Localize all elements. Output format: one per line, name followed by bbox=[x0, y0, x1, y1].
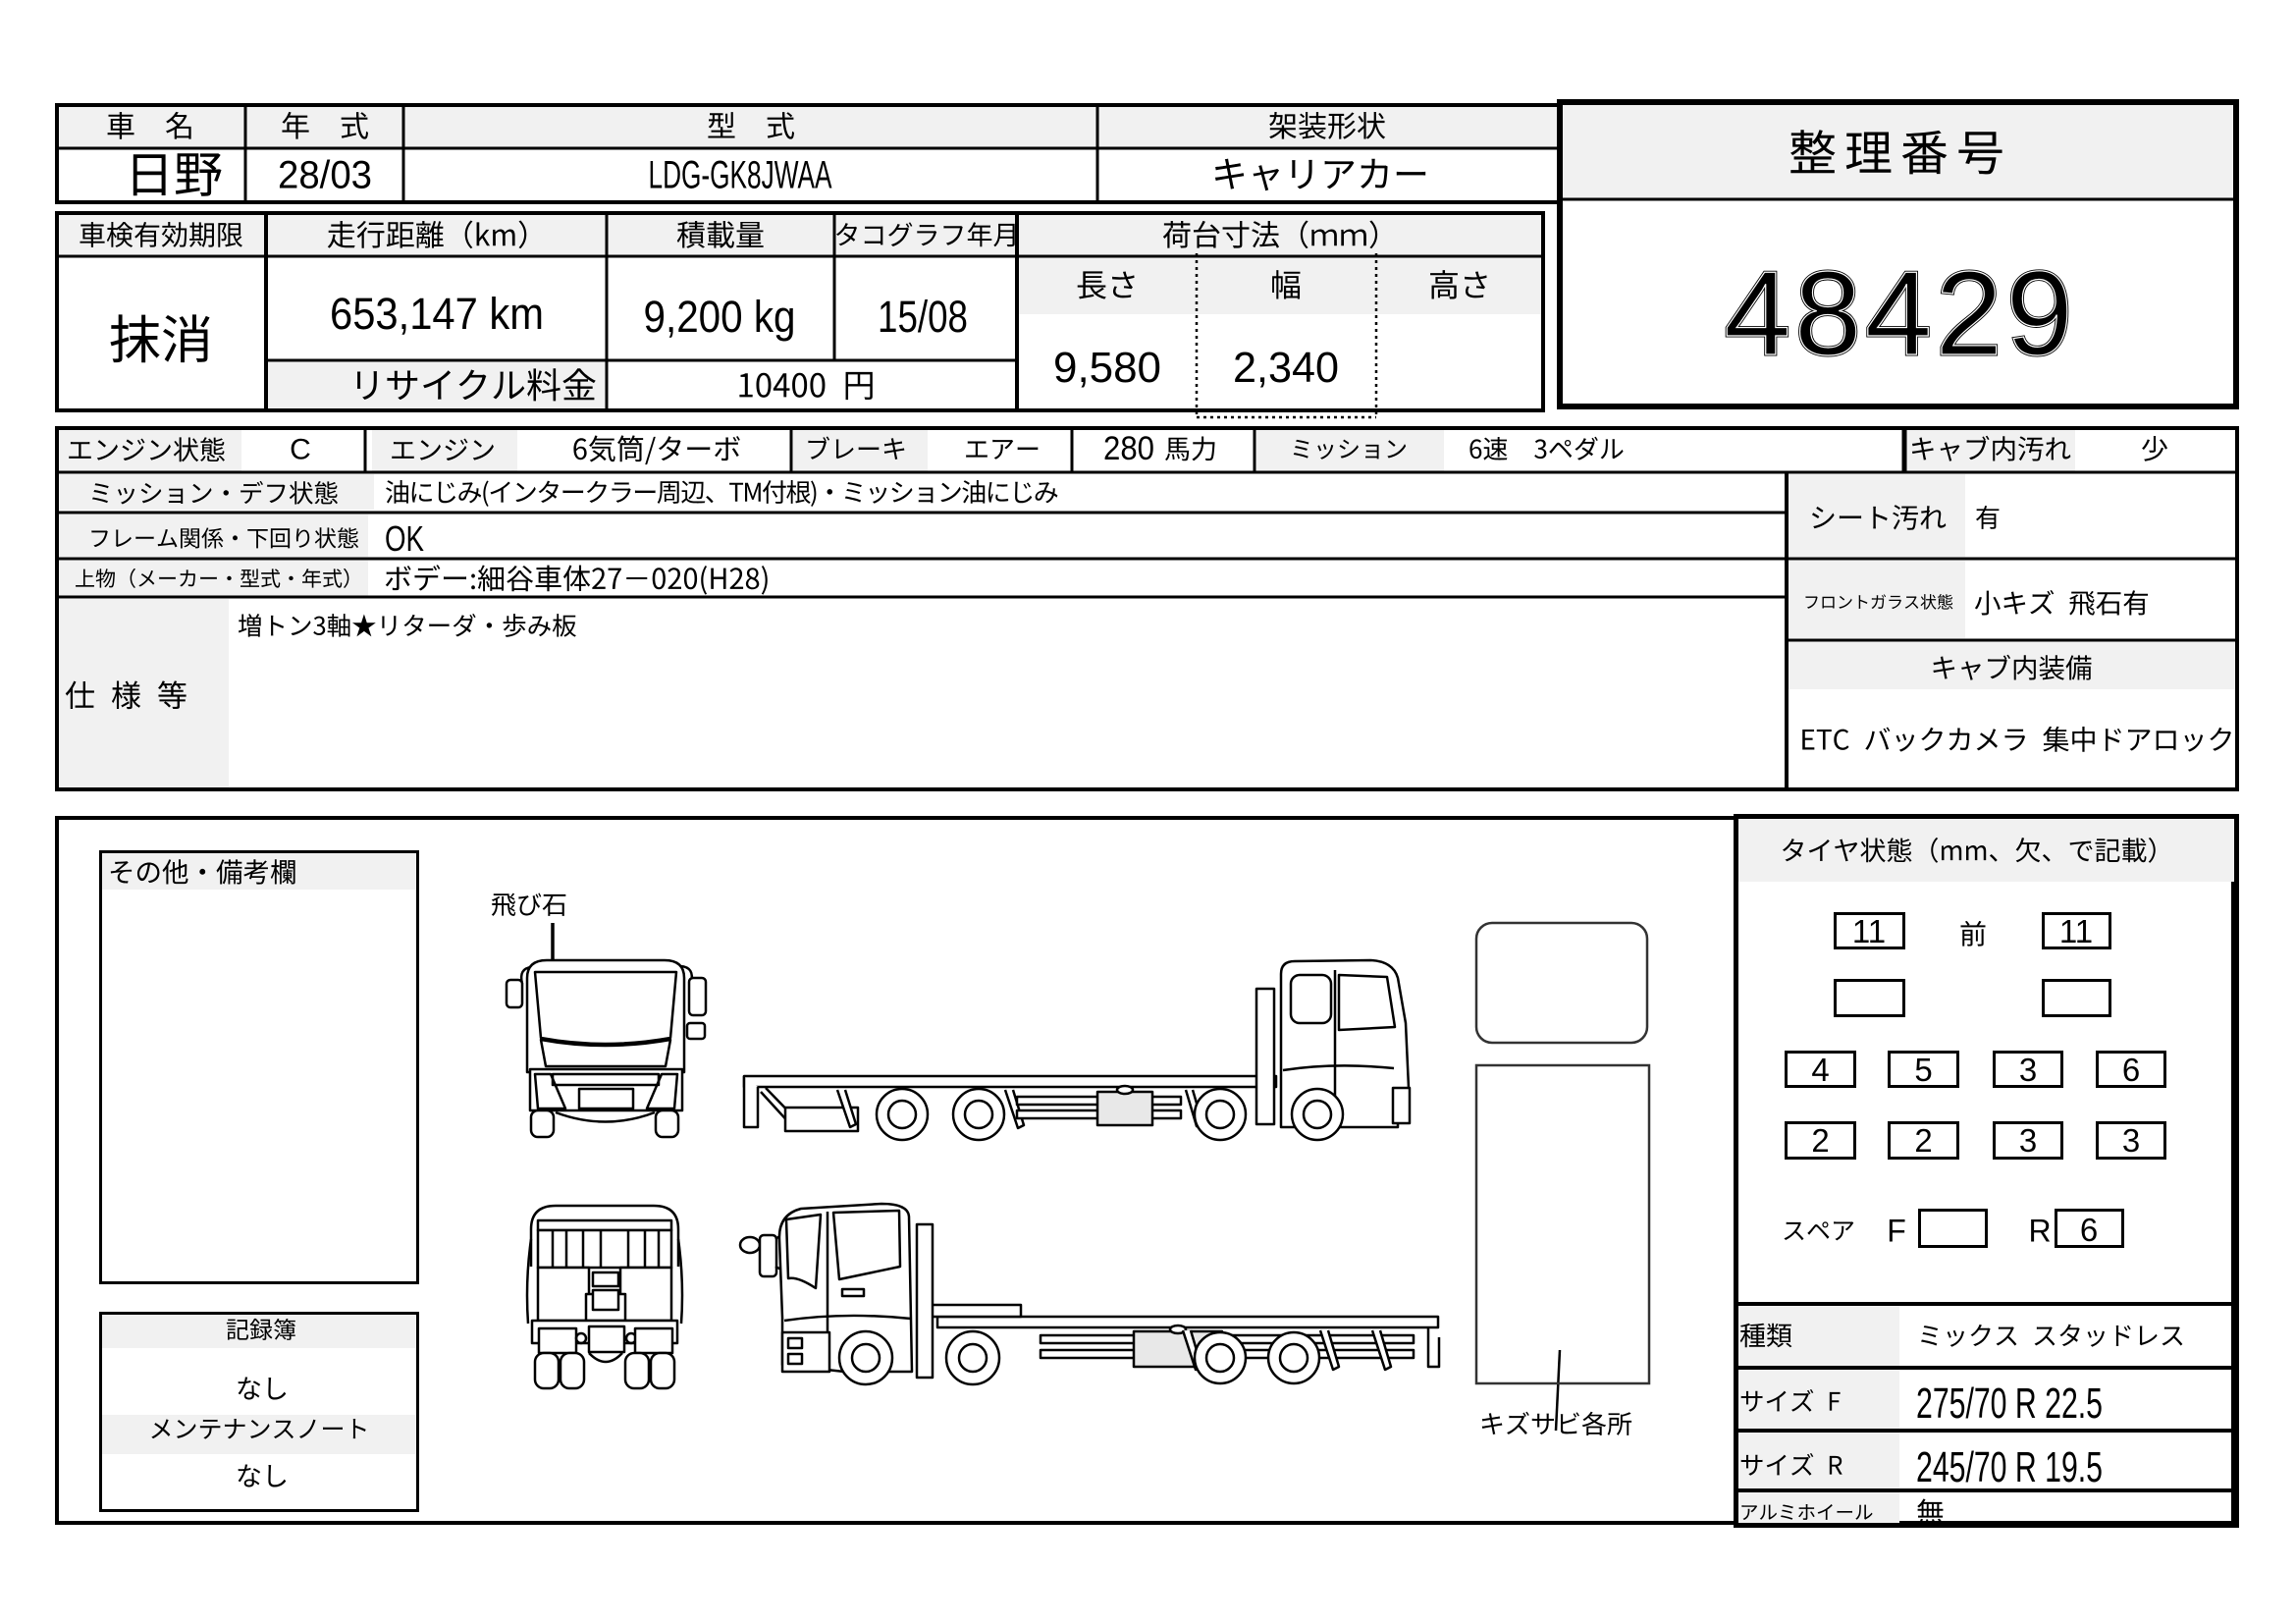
svg-text:6: 6 bbox=[2122, 1052, 2140, 1088]
svg-text:2,340: 2,340 bbox=[1233, 344, 1339, 392]
svg-text:6: 6 bbox=[2080, 1212, 2098, 1248]
svg-text:48429: 48429 bbox=[1724, 246, 2076, 380]
svg-text:3: 3 bbox=[2019, 1122, 2037, 1159]
svg-text:OK: OK bbox=[385, 518, 424, 559]
svg-text:C: C bbox=[290, 434, 311, 466]
svg-text:245/70 R 19.5: 245/70 R 19.5 bbox=[1916, 1443, 2103, 1491]
svg-text:11: 11 bbox=[2059, 913, 2093, 949]
svg-text:R: R bbox=[2028, 1214, 2051, 1249]
svg-text:275/70 R 22.5: 275/70 R 22.5 bbox=[1916, 1380, 2103, 1428]
svg-text:280: 280 bbox=[1103, 430, 1154, 467]
svg-text:3: 3 bbox=[2019, 1052, 2037, 1088]
svg-text:653,147 km: 653,147 km bbox=[330, 289, 544, 339]
svg-text:9,580: 9,580 bbox=[1053, 344, 1161, 392]
svg-text:9,200 kg: 9,200 kg bbox=[644, 292, 796, 342]
svg-text:LDG-GK8JWAA: LDG-GK8JWAA bbox=[649, 153, 832, 196]
svg-text:2: 2 bbox=[1811, 1122, 1829, 1159]
svg-text:11: 11 bbox=[1852, 913, 1886, 949]
svg-text:F: F bbox=[1887, 1214, 1906, 1249]
svg-text:28/03: 28/03 bbox=[278, 153, 372, 196]
svg-text:3: 3 bbox=[2122, 1122, 2140, 1159]
svg-text:15/08: 15/08 bbox=[878, 292, 968, 342]
svg-text:5: 5 bbox=[1914, 1052, 1932, 1088]
svg-text:2: 2 bbox=[1914, 1122, 1932, 1159]
svg-text:4: 4 bbox=[1811, 1052, 1829, 1088]
